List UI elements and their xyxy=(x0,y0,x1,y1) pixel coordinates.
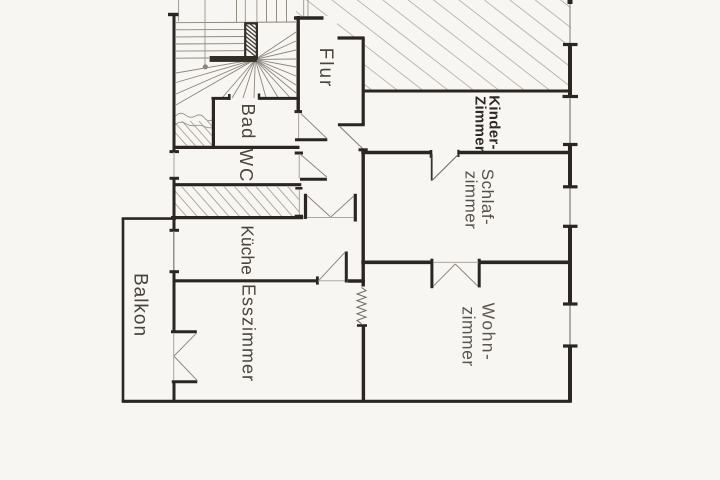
svg-text:zimmer: zimmer xyxy=(459,306,479,366)
svg-text:zimmer: zimmer xyxy=(461,171,480,230)
svg-text:Küche: Küche xyxy=(238,225,258,275)
svg-text:Flur: Flur xyxy=(315,48,336,89)
svg-text:WC: WC xyxy=(236,149,257,184)
svg-text:Zimmer: Zimmer xyxy=(472,96,489,152)
svg-text:Balkon: Balkon xyxy=(129,273,150,337)
svg-text:Esszimmer: Esszimmer xyxy=(239,284,259,382)
svg-text:Wohn-: Wohn- xyxy=(479,303,499,362)
svg-text:Bad: Bad xyxy=(238,104,259,140)
